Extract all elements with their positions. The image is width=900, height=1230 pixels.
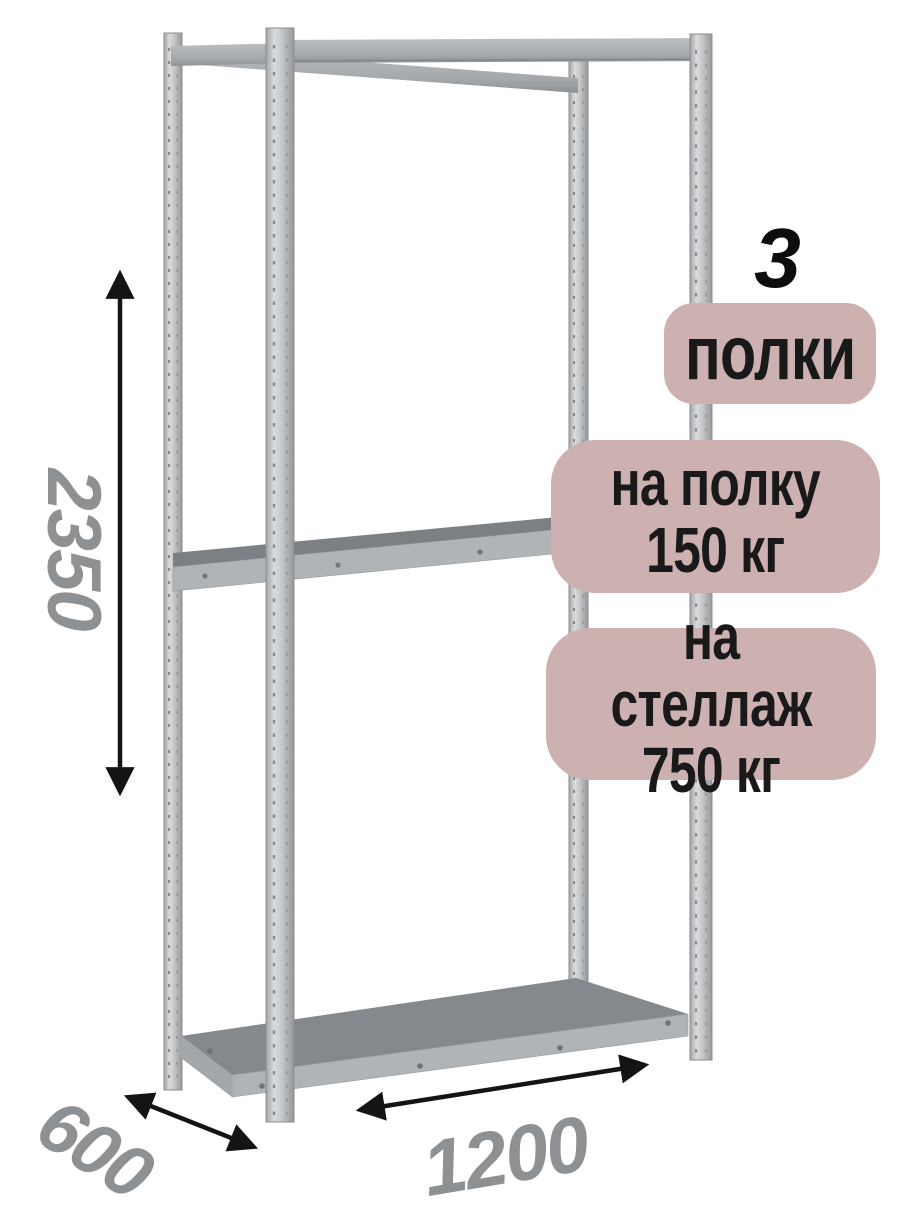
dimension-label-height: 2350 <box>34 449 114 649</box>
load-per-rack-line2: 750 кг <box>582 737 839 804</box>
badge-shelf-count-label: полки <box>685 314 855 393</box>
badge-load-per-rack: на стеллаж 750 кг <box>546 628 876 780</box>
badge-shelf-count: полки <box>664 303 876 404</box>
rack-top-beam-front <box>267 38 712 63</box>
shelf-count-number: 3 <box>705 213 850 303</box>
load-per-shelf-line2: 150 кг <box>611 517 820 584</box>
rack-post-front-left <box>266 28 294 1122</box>
rack-shelf-middle <box>173 515 594 591</box>
shelf-count-value: 3 <box>754 210 801 307</box>
load-per-shelf-line1: на полку <box>611 450 820 517</box>
badge-load-per-shelf: на полку 150 кг <box>551 440 880 593</box>
rack-shelf-bottom <box>181 978 688 1097</box>
product-image-canvas: { "product_card": { "shelf_count": { "va… <box>0 0 900 1200</box>
load-per-rack-line1: на стеллаж <box>582 604 839 737</box>
shelving-rack-illustration <box>0 0 900 1200</box>
